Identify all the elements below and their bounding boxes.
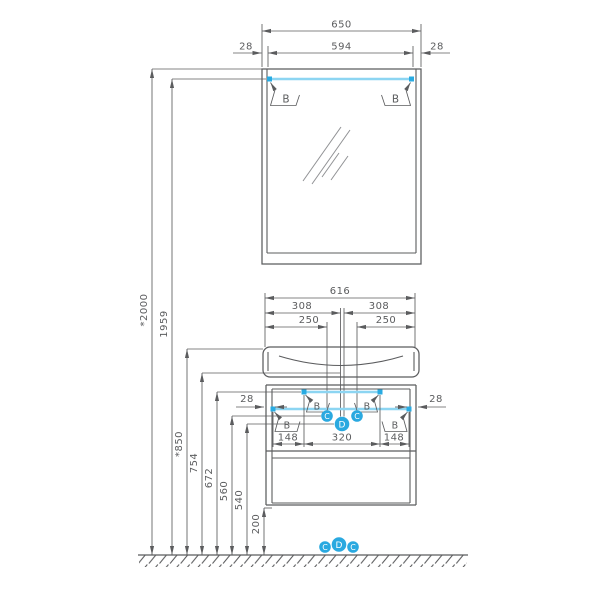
dim-vanity-offset-right-label: 250 <box>376 315 397 326</box>
dim-mirror-rail-label: 594 <box>331 42 352 53</box>
floor-hatching <box>139 556 467 568</box>
mirror-hanging-rail <box>267 77 414 82</box>
height-dim-mirror-hook-label: 1959 <box>159 310 170 337</box>
dim-vanity-gap-right-label: 28 <box>429 394 443 405</box>
dim-mirror-overall-label: 650 <box>331 20 352 31</box>
dim-span-right-label: 148 <box>384 433 405 444</box>
height-dim-overall: *2000 <box>139 69 262 555</box>
mirror-hook-right-label: B <box>392 94 399 106</box>
cabinet-lower-rail <box>271 407 412 412</box>
cabinet-upper-rail <box>302 390 383 395</box>
side-gap-dimensions: 28 28 <box>236 394 446 407</box>
mirror-width-dimensions: 650 594 28 28 <box>233 20 450 68</box>
washbasin-countertop <box>263 347 419 377</box>
cabinet-hook-upper-right-label: B <box>364 402 371 413</box>
height-dim-drain-label: 540 <box>234 490 245 511</box>
supply-point-left-label: C <box>324 412 330 421</box>
mirror-hook-left-label: B <box>282 94 289 106</box>
height-dim-basin-bottom-label: 754 <box>189 453 200 474</box>
cabinet-mount-point-lower-left <box>271 407 276 412</box>
dim-mirror-gap-left-label: 28 <box>239 42 253 53</box>
height-dim-supply: 560 <box>219 416 321 555</box>
vanity-unit: 28 28 B B B B C C <box>236 347 446 505</box>
cabinet-mount-point-lower-right <box>407 407 412 412</box>
floor-drain-label: D <box>336 541 343 551</box>
mirror-mount-point-right <box>409 77 414 82</box>
dim-vanity-offset-left-label: 250 <box>299 315 320 326</box>
mirror-hook-right: B <box>382 83 411 106</box>
dim-vanity-overall-label: 616 <box>330 286 351 297</box>
height-dim-cabinet-bottom: 200 <box>251 508 272 555</box>
supply-point-right-label: C <box>354 412 360 421</box>
height-dim-cabinet-hook-label: 672 <box>204 468 215 489</box>
vanity-width-dimensions: 616 308 308 250 250 <box>265 286 415 417</box>
cabinet-hook-lower-right: B <box>382 412 408 432</box>
cabinet-hook-lower-left-label: B <box>284 421 291 432</box>
cabinet-mount-point-upper-right <box>378 390 383 395</box>
cabinet-mount-point-upper-left <box>302 390 307 395</box>
utility-points: C C D <box>321 410 363 431</box>
height-dim-overall-label: *2000 <box>139 294 150 327</box>
dim-vanity-gap-left-label: 28 <box>240 394 254 405</box>
height-dim-countertop: *850 <box>174 349 263 555</box>
dim-mirror-gap-right-label: 28 <box>430 42 444 53</box>
floor-supply-right-label: C <box>350 543 356 552</box>
dim-span-left-label: 148 <box>278 433 299 444</box>
drain-point-label: D <box>339 421 346 431</box>
floor-utility-points: C D C <box>319 537 359 553</box>
cabinet-hook-upper-left-label: B <box>314 402 321 413</box>
drawing-canvas: *2000 1959 *850 754 672 560 <box>0 0 600 600</box>
cabinet-hook-lower-right-label: B <box>392 421 399 432</box>
height-dim-supply-label: 560 <box>219 481 230 502</box>
cabinet-hook-lower-left: B <box>275 412 301 432</box>
mirror-mount-point-left <box>267 77 272 82</box>
dim-vanity-half-right-label: 308 <box>369 301 390 312</box>
cabinet-frame <box>266 385 416 505</box>
basin-front-curve <box>279 356 403 366</box>
floor: C D C <box>138 537 468 567</box>
height-dim-cabinet-bottom-label: 200 <box>251 514 262 535</box>
mirror-glass-hatch <box>303 127 350 184</box>
floor-supply-left-label: C <box>322 543 328 552</box>
mirror-hook-left: B <box>271 83 300 106</box>
installation-drawing: *2000 1959 *850 754 672 560 <box>0 0 600 600</box>
height-dim-countertop-label: *850 <box>174 431 185 457</box>
mirror-unit: B B 650 594 28 28 <box>233 20 450 265</box>
dim-vanity-half-left-label: 308 <box>292 301 313 312</box>
height-dimensions: *2000 1959 *850 754 672 560 <box>139 69 340 555</box>
dim-span-center-label: 320 <box>332 433 353 444</box>
height-dim-basin-bottom: 754 <box>189 373 340 555</box>
